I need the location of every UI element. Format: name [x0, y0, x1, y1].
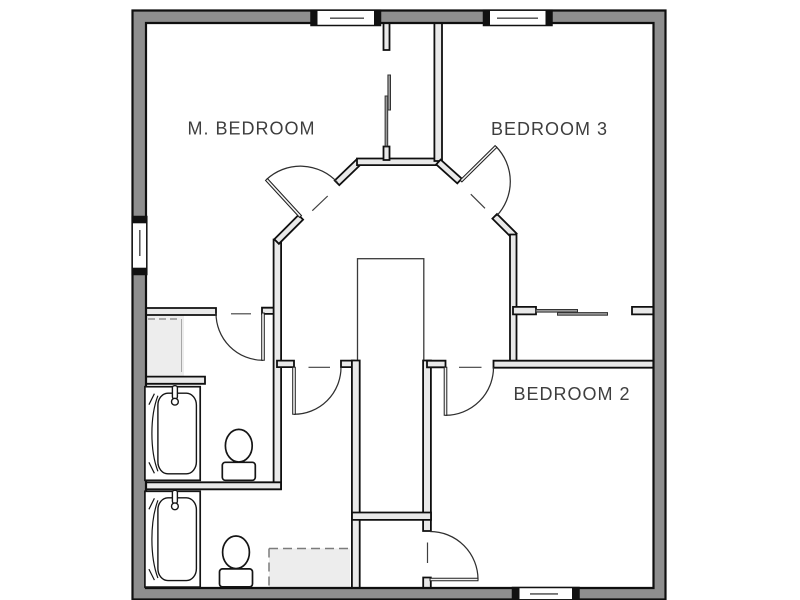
svg-text:M. BEDROOM: M. BEDROOM — [187, 119, 315, 139]
svg-text:BEDROOM 3: BEDROOM 3 — [491, 119, 608, 139]
svg-text:BEDROOM 2: BEDROOM 2 — [513, 384, 630, 404]
